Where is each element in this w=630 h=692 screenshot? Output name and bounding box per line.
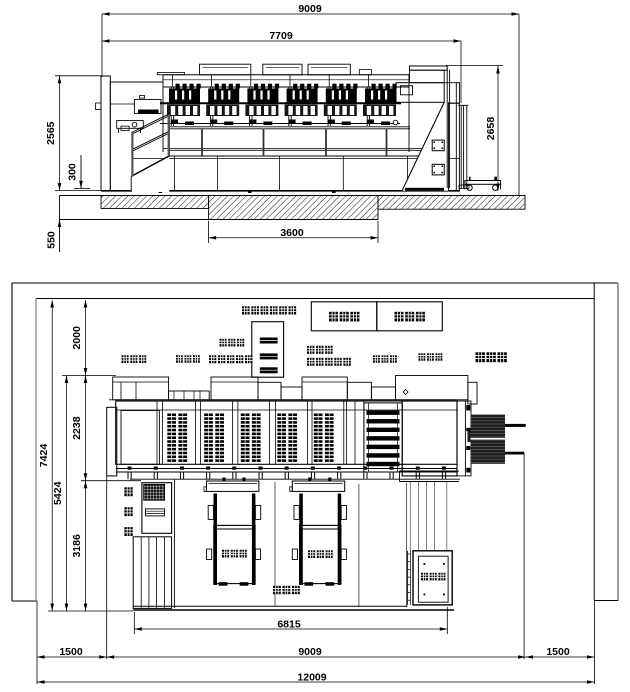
svg-text:2000: 2000 [71, 326, 83, 350]
svg-text:5424: 5424 [52, 481, 64, 505]
svg-text:1500: 1500 [59, 646, 83, 658]
svg-text:1500: 1500 [546, 646, 570, 658]
svg-text:9009: 9009 [298, 3, 322, 15]
svg-text:3600: 3600 [280, 227, 304, 239]
svg-text:12009: 12009 [297, 671, 326, 683]
svg-text:2238: 2238 [71, 416, 83, 440]
svg-text:7424: 7424 [38, 444, 50, 468]
svg-text:6815: 6815 [277, 618, 301, 630]
svg-text:9009: 9009 [298, 646, 322, 658]
svg-text:3186: 3186 [71, 534, 83, 558]
svg-text:2658: 2658 [485, 117, 497, 141]
svg-text:2565: 2565 [45, 121, 57, 145]
svg-text:300: 300 [67, 163, 79, 181]
svg-text:7709: 7709 [269, 30, 293, 42]
svg-text:550: 550 [46, 231, 58, 249]
